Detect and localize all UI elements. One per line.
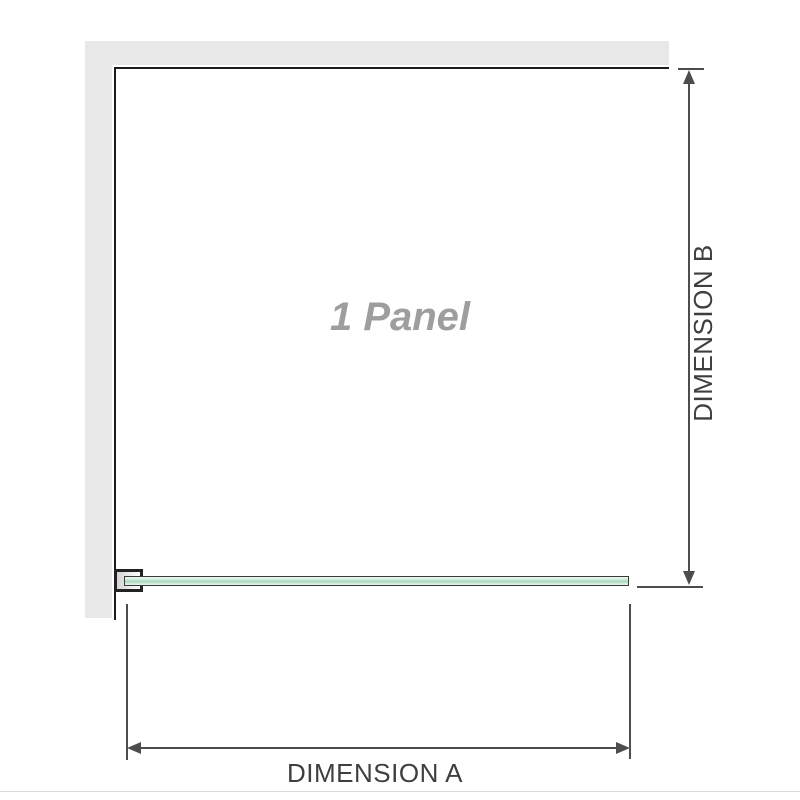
bottom-separator-line	[0, 791, 800, 792]
shower-screen-diagram: 1 Panel DIMENSION B DIMENSION A	[0, 0, 800, 800]
wall-top-band	[85, 41, 669, 65]
arrow-down-icon	[683, 571, 695, 585]
dimension-b-label: DIMENSION B	[690, 183, 716, 483]
arrow-up-icon	[683, 70, 695, 84]
dimension-a-left-extension	[126, 604, 128, 760]
wall-left-edge-line	[114, 67, 116, 620]
panel-count-label: 1 Panel	[250, 296, 550, 338]
dimension-b-bottom-tick	[637, 586, 703, 588]
dimension-a-label: DIMENSION A	[175, 760, 575, 786]
arrow-right-icon	[616, 742, 630, 754]
wall-top-edge-line	[114, 67, 669, 69]
glass-panel	[124, 576, 629, 586]
wall-left-band	[85, 41, 112, 618]
dimension-a-line	[130, 747, 627, 749]
arrow-left-icon	[127, 742, 141, 754]
dimension-a-right-extension	[629, 604, 631, 759]
